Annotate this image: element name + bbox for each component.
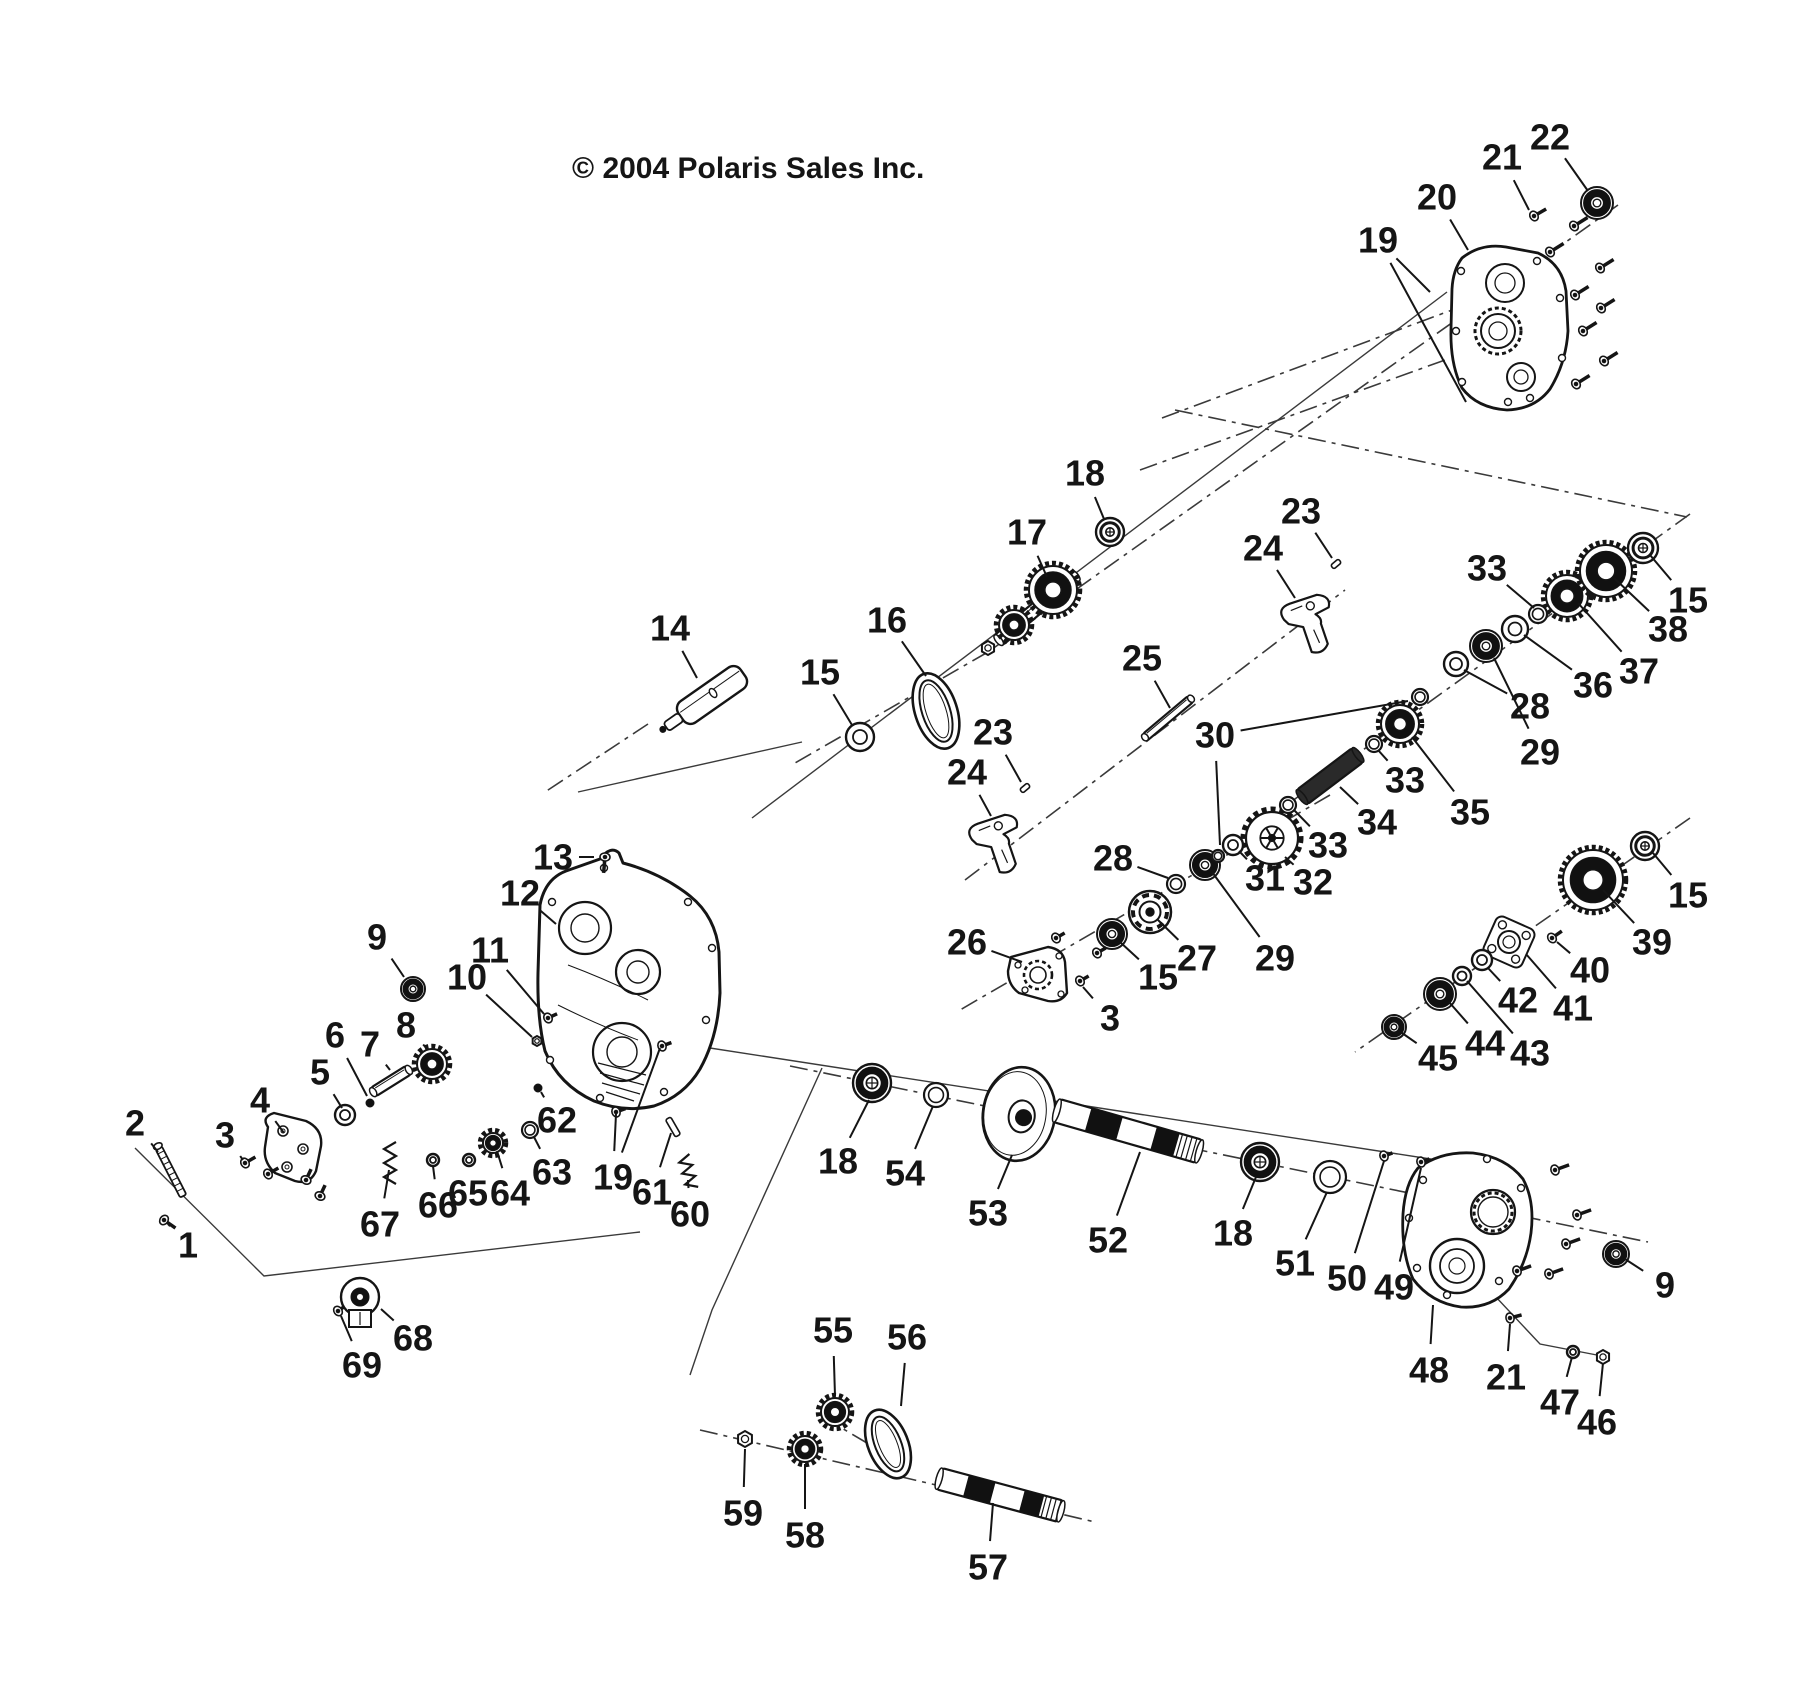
part-label-27: 27 <box>1177 938 1217 979</box>
part-screw <box>1569 282 1591 301</box>
part-label-33: 33 <box>1308 825 1348 866</box>
part-label-28: 28 <box>1510 686 1550 727</box>
part-label-44: 44 <box>1465 1023 1505 1064</box>
leader-line-48 <box>1431 1305 1433 1344</box>
leader-line-18 <box>850 1100 869 1138</box>
part-disc53 <box>977 1062 1061 1165</box>
part-ball <box>534 1084 542 1092</box>
part-label-43: 43 <box>1510 1033 1550 1074</box>
leader-line-15 <box>1120 942 1139 959</box>
leader-line-53 <box>998 1155 1012 1189</box>
part-ring <box>522 1122 538 1138</box>
part-label-4: 4 <box>250 1080 270 1121</box>
part-label-29: 29 <box>1520 732 1560 773</box>
leader-line-21 <box>1508 1324 1510 1351</box>
part-label-66: 66 <box>418 1185 458 1226</box>
leader-line-15 <box>1650 555 1671 580</box>
part-shaft <box>1294 746 1366 806</box>
part-label-9: 9 <box>367 917 387 958</box>
part-label-48: 48 <box>1409 1350 1449 1391</box>
part-screw <box>158 1214 178 1233</box>
leader-line-44 <box>1449 1002 1468 1023</box>
part-gear <box>1378 702 1422 746</box>
part-label-3: 3 <box>215 1115 235 1156</box>
part-pin <box>665 1117 680 1137</box>
part-label-60: 60 <box>670 1194 710 1235</box>
part-screw <box>1546 927 1565 944</box>
leader-line-18 <box>1243 1177 1256 1209</box>
part-label-36: 36 <box>1573 665 1613 706</box>
part-screw <box>1379 1148 1395 1162</box>
part-gear <box>818 1395 852 1429</box>
leader-line-14 <box>682 651 697 678</box>
part-shaft <box>933 1467 1066 1522</box>
part-label-33: 33 <box>1385 760 1425 801</box>
part-washer <box>427 1154 439 1166</box>
part-label-1: 1 <box>178 1225 198 1266</box>
part-gear <box>1026 563 1080 617</box>
leader-line-19 <box>614 1114 616 1151</box>
leader-line-15 <box>833 694 852 725</box>
part-label-21: 21 <box>1482 137 1522 178</box>
leader-line-47 <box>1567 1357 1572 1377</box>
part-label-28: 28 <box>1093 838 1133 879</box>
leader-line-37 <box>1578 603 1622 652</box>
part-nut <box>738 1431 752 1447</box>
part-screw <box>1577 318 1599 337</box>
part-label-49: 49 <box>1374 1267 1414 1308</box>
part-label-29: 29 <box>1255 938 1295 979</box>
part-belt <box>904 667 968 754</box>
part-screw <box>1505 1310 1523 1324</box>
part-spring <box>384 1142 396 1184</box>
part-label-42: 42 <box>1498 980 1538 1021</box>
leader-line-28 <box>1137 867 1168 878</box>
leader-line-19 <box>1396 258 1430 292</box>
part-label-11: 11 <box>471 930 509 971</box>
part-label-24: 24 <box>947 752 987 793</box>
leader-line-56 <box>901 1363 905 1406</box>
part-label-57: 57 <box>968 1547 1008 1588</box>
axis-dash-line <box>1140 360 1445 470</box>
part-label-7: 7 <box>360 1024 380 1065</box>
leader-line-66 <box>433 1166 435 1179</box>
part-darkring <box>1382 1015 1406 1039</box>
part-tool14 <box>653 663 751 742</box>
part-label-25: 25 <box>1122 638 1162 679</box>
part-label-18: 18 <box>818 1141 858 1182</box>
part-bearing <box>853 1064 891 1102</box>
part-label-52: 52 <box>1088 1220 1128 1261</box>
part-label-32: 32 <box>1293 862 1333 903</box>
leader-line-7 <box>386 1065 390 1070</box>
part-label-15: 15 <box>1138 957 1178 998</box>
part-pin <box>1020 783 1031 793</box>
part-label-62: 62 <box>537 1100 577 1141</box>
part-label-40: 40 <box>1570 950 1610 991</box>
part-ring <box>1314 1161 1346 1193</box>
part-ring <box>924 1083 948 1107</box>
part-screw <box>239 1153 258 1170</box>
part-bearing <box>1096 518 1124 546</box>
part-cover20 <box>1451 246 1568 410</box>
part-nut <box>1597 1350 1609 1364</box>
part-label-6: 6 <box>325 1015 345 1056</box>
part-nut <box>533 1036 542 1046</box>
part-screw <box>1544 1264 1565 1280</box>
part-screw <box>1570 371 1592 390</box>
part-washer <box>463 1154 475 1166</box>
leader-line-61 <box>660 1133 671 1167</box>
part-label-30: 30 <box>1195 715 1235 756</box>
part-screw <box>1572 1205 1593 1221</box>
leader-line-15 <box>1653 853 1671 875</box>
leader-line-57 <box>990 1503 993 1541</box>
part-label-55: 55 <box>813 1310 853 1351</box>
part-cover48 <box>1403 1153 1532 1307</box>
leader-line-25 <box>1155 681 1170 708</box>
part-label-8: 8 <box>396 1005 416 1046</box>
part-nut <box>982 641 994 655</box>
part-darkring <box>401 977 425 1001</box>
leader-line-9 <box>392 959 404 977</box>
part-gear <box>789 1433 821 1465</box>
part-screw <box>1561 1234 1582 1250</box>
leader-line-68 <box>381 1309 394 1321</box>
axis-dash-line <box>545 724 648 792</box>
part-darkring <box>1470 630 1502 662</box>
part-label-5: 5 <box>310 1052 330 1093</box>
leader-line-34 <box>1340 787 1358 804</box>
part-label-41: 41 <box>1553 988 1593 1029</box>
part-gear <box>414 1046 450 1082</box>
part-ring <box>1412 689 1428 705</box>
part-label-63: 63 <box>532 1152 572 1193</box>
part-darkring <box>1581 187 1613 219</box>
part-label-53: 53 <box>968 1193 1008 1234</box>
part-label-12: 12 <box>500 873 540 914</box>
leader-line-54 <box>915 1106 933 1149</box>
part-label-15: 15 <box>800 652 840 693</box>
axis-dash-line <box>1162 310 1452 418</box>
part-label-68: 68 <box>393 1318 433 1359</box>
part-shaft <box>368 1064 414 1098</box>
part-label-67: 67 <box>360 1204 400 1245</box>
part-sensor68 <box>341 1278 379 1327</box>
leader-line-36 <box>1524 635 1572 670</box>
leader-line-62 <box>541 1092 544 1097</box>
leader-line-10 <box>486 995 532 1037</box>
part-label-31: 31 <box>1245 858 1285 899</box>
axis-dash-line <box>1175 410 1687 517</box>
leader-line-40 <box>1557 942 1570 953</box>
part-ring <box>1366 736 1382 752</box>
part-label-15: 15 <box>1668 875 1708 916</box>
leader-line-30 <box>1216 761 1220 845</box>
leader-line-59 <box>744 1449 745 1487</box>
part-label-56: 56 <box>887 1317 927 1358</box>
leader-line-24 <box>979 795 991 816</box>
leader-line-21 <box>1514 180 1529 210</box>
part-label-23: 23 <box>1281 491 1321 532</box>
leader-line-20 <box>1450 219 1468 250</box>
part-washer <box>1472 950 1492 970</box>
part-label-54: 54 <box>885 1153 925 1194</box>
part-screw <box>314 1183 330 1202</box>
leader-line-18 <box>1095 497 1104 519</box>
part-label-23: 23 <box>973 712 1013 753</box>
part-label-34: 34 <box>1357 802 1397 843</box>
leader-line-3 <box>240 1156 243 1160</box>
part-screw <box>1074 972 1091 988</box>
part-label-59: 59 <box>723 1493 763 1534</box>
part-screw <box>1544 239 1566 258</box>
part-label-13: 13 <box>533 837 573 878</box>
part-screw <box>1595 295 1617 314</box>
part-fork <box>1279 593 1335 656</box>
part-washer <box>1502 616 1528 642</box>
part-label-64: 64 <box>490 1173 530 1214</box>
leader-line-16 <box>902 641 926 676</box>
part-label-26: 26 <box>947 922 987 963</box>
part-bracket26 <box>1008 947 1067 1001</box>
part-bearing <box>1241 1143 1279 1181</box>
part-darkring <box>1603 1241 1629 1267</box>
leader-line-46 <box>1600 1363 1603 1396</box>
part-shaft <box>1051 1098 1206 1164</box>
part-pin <box>1331 559 1342 569</box>
part-gear <box>480 1130 506 1156</box>
leader-line-23 <box>1315 533 1332 558</box>
part-label-47: 47 <box>1540 1382 1580 1423</box>
part-label-35: 35 <box>1450 792 1490 833</box>
part-label-3: 3 <box>1100 998 1120 1039</box>
leader-line-50 <box>1355 1161 1384 1253</box>
leader-line-22 <box>1565 158 1588 191</box>
part-label-2: 2 <box>125 1103 145 1144</box>
part-label-33: 33 <box>1467 548 1507 589</box>
leader-line-5 <box>334 1094 342 1108</box>
part-label-15: 15 <box>1668 580 1708 621</box>
part-label-46: 46 <box>1577 1402 1617 1443</box>
leader-line-52 <box>1117 1152 1140 1216</box>
part-label-69: 69 <box>342 1345 382 1386</box>
part-ring <box>1529 605 1547 623</box>
part-label-58: 58 <box>785 1515 825 1556</box>
part-washer <box>1444 652 1468 676</box>
part-label-39: 39 <box>1632 922 1672 963</box>
frame-line <box>578 742 802 792</box>
leader-line-45 <box>1402 1033 1417 1043</box>
leader-line-51 <box>1306 1192 1327 1239</box>
part-ring <box>1167 875 1185 893</box>
part-screw <box>1598 348 1620 367</box>
leader-line-33 <box>1507 585 1534 608</box>
part-label-9: 9 <box>1655 1265 1675 1306</box>
part-label-61: 61 <box>632 1172 672 1213</box>
part-ring <box>1212 850 1224 862</box>
part-washer <box>846 723 874 751</box>
part-screw <box>1528 205 1549 223</box>
part-fork <box>967 813 1023 876</box>
part-label-51: 51 <box>1275 1243 1315 1284</box>
leader-line-55 <box>834 1356 835 1396</box>
part-screw <box>1550 1160 1571 1176</box>
part-washer <box>335 1105 355 1125</box>
part-label-45: 45 <box>1418 1038 1458 1079</box>
part-housing12 <box>538 850 720 1108</box>
part-label-14: 14 <box>650 608 690 649</box>
copyright-text: © 2004 Polaris Sales Inc. <box>572 152 924 185</box>
part-label-18: 18 <box>1213 1213 1253 1254</box>
leader-line-24 <box>1277 570 1295 598</box>
part-label-24: 24 <box>1243 528 1283 569</box>
part-label-17: 17 <box>1007 512 1047 553</box>
part-label-50: 50 <box>1327 1258 1367 1299</box>
part-label-19: 19 <box>593 1157 633 1198</box>
part-shaft <box>1140 694 1196 743</box>
part-label-37: 37 <box>1619 651 1659 692</box>
parts-diagram-page: 1234567891011121314151617181920212223242… <box>0 0 1816 1700</box>
part-label-19: 19 <box>1358 220 1398 261</box>
leader-line-3 <box>1083 987 1093 998</box>
leader-line-64 <box>497 1151 502 1168</box>
part-screw <box>1594 255 1616 274</box>
part-label-16: 16 <box>867 600 907 641</box>
part-label-20: 20 <box>1417 177 1457 218</box>
exploded-parts-diagram: 1234567891011121314151617181920212223242… <box>0 0 1816 1700</box>
part-label-21: 21 <box>1486 1357 1526 1398</box>
part-label-22: 22 <box>1530 117 1570 158</box>
part-screw <box>1050 929 1067 945</box>
leader-line-9 <box>1625 1259 1643 1271</box>
part-ball <box>366 1099 374 1107</box>
part-belt <box>856 1403 920 1485</box>
part-label-18: 18 <box>1065 453 1105 494</box>
part-gear <box>996 607 1032 643</box>
leader-line-23 <box>1006 755 1021 782</box>
part-washer <box>1567 1346 1579 1358</box>
